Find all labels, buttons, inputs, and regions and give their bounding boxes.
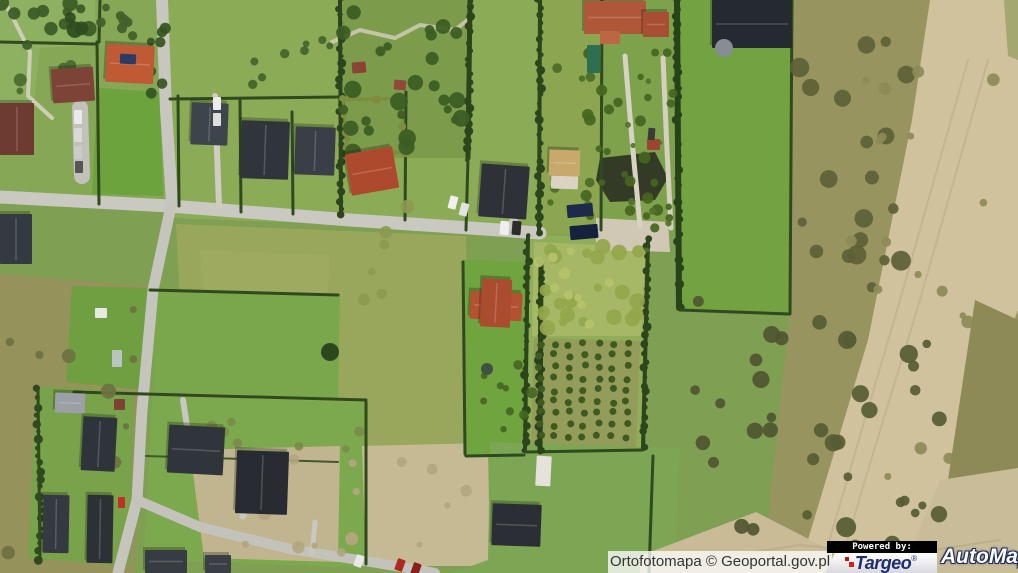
tree (294, 442, 303, 451)
hedge-shrub (338, 68, 346, 76)
structure (213, 113, 221, 126)
tree (596, 85, 607, 96)
hedge-shrub (466, 12, 475, 21)
hedge-shrub (463, 136, 472, 145)
orchard-tree (538, 399, 545, 406)
hedge-shrub (525, 322, 531, 328)
hedge-shrub (340, 54, 344, 58)
tree (513, 360, 522, 369)
orchard-tree (567, 420, 574, 427)
orchard-tree (609, 408, 616, 415)
orchard-tree (551, 423, 558, 430)
hedge-shrub (672, 116, 680, 124)
hedge-shrub (526, 291, 531, 296)
tree (625, 176, 636, 187)
tree (987, 73, 1000, 86)
orchard-tree (609, 350, 616, 357)
tree (878, 82, 891, 95)
hedge-shrub (674, 6, 681, 13)
hedge-shrub (523, 359, 528, 364)
tree (585, 178, 595, 188)
hedge-shrub (468, 88, 474, 94)
structure (499, 221, 509, 236)
tree (526, 387, 537, 398)
hedge-shrub (536, 47, 541, 52)
tree (292, 541, 304, 553)
tree (846, 235, 857, 246)
hedge-shrub (524, 306, 528, 310)
hedge-shrub (523, 264, 530, 271)
tree (416, 542, 422, 548)
hedge-shrub (526, 299, 530, 303)
tree (585, 320, 594, 329)
orchard-tree (596, 364, 603, 371)
hedge-shrub (536, 298, 543, 305)
hedge-shrub (339, 95, 345, 101)
structure (95, 308, 107, 318)
tree (642, 192, 654, 204)
tree (876, 137, 883, 144)
orchard-tree (622, 397, 629, 404)
tree (852, 385, 869, 402)
hedge-shrub (339, 172, 346, 179)
tree (825, 434, 842, 451)
orchard-tree (625, 340, 632, 347)
hedge-shrub (642, 387, 650, 395)
orchard-tree (607, 432, 614, 439)
tree (550, 283, 559, 292)
hedge-shrub (535, 115, 544, 124)
tree (289, 454, 300, 465)
tree (884, 473, 891, 480)
orchard-tree (578, 433, 585, 440)
hedge-shrub (673, 37, 678, 42)
tree (650, 179, 658, 187)
hedge-shrub (640, 340, 648, 348)
orchard-tree (550, 396, 557, 403)
tree (242, 541, 249, 548)
orchard-tree (537, 375, 544, 382)
hedge (466, 455, 524, 456)
hedge-shrub (524, 240, 528, 244)
tree (798, 217, 807, 226)
structure (74, 128, 82, 142)
tree (665, 220, 671, 226)
hedge-shrub (535, 60, 542, 67)
tree (603, 148, 610, 155)
hedge-shrub (536, 12, 543, 19)
hedge-shrub (37, 483, 43, 489)
hedge-shrub (644, 254, 649, 259)
tree (6, 338, 15, 347)
orchard-tree (610, 341, 617, 348)
tree (637, 74, 643, 80)
tree (539, 284, 551, 296)
tree (860, 136, 873, 149)
hedge-shrub (675, 141, 681, 147)
round-feature (481, 363, 493, 375)
tree (693, 296, 704, 307)
tree (345, 532, 358, 545)
hedge-shrub (676, 104, 681, 109)
hedge-shrub (673, 29, 681, 37)
hedge-shrub (337, 211, 345, 219)
orchard-tree (566, 374, 573, 381)
hedge-shrub (539, 269, 545, 275)
tree (425, 25, 435, 35)
hedge-shrub (644, 398, 648, 402)
tree (128, 31, 137, 40)
tree (790, 58, 809, 77)
tree (834, 90, 851, 107)
tree (891, 251, 911, 271)
hedge-shrub (677, 231, 683, 237)
hedge-shrub (524, 334, 528, 338)
tree (943, 453, 954, 464)
tree (497, 382, 504, 389)
structure (75, 161, 83, 173)
orchard-tree (566, 354, 573, 361)
orchard-tree (535, 364, 542, 371)
tree (763, 422, 778, 437)
tree (538, 306, 550, 318)
orchard-tree (537, 408, 544, 415)
hedge (170, 97, 339, 99)
tree (932, 411, 947, 426)
tree (595, 239, 610, 254)
hedge-shrub (467, 79, 473, 85)
tree (383, 42, 392, 51)
tree (594, 284, 602, 292)
structure (352, 61, 367, 73)
tree (586, 72, 595, 81)
tree (364, 125, 374, 135)
tree (449, 92, 465, 108)
tree (233, 438, 242, 447)
hedge-shrub (523, 283, 529, 289)
hedge-shrub (537, 102, 541, 106)
tree (696, 436, 711, 451)
tree (408, 75, 424, 91)
hedge-shrub (677, 264, 684, 271)
orchard-tree (579, 387, 586, 394)
tree (438, 94, 449, 105)
targeo-dots-icon (845, 557, 854, 570)
tree (506, 407, 514, 415)
tree (611, 245, 627, 261)
hedge-shrub (536, 36, 543, 43)
tree (625, 122, 631, 128)
hedge-shrub (335, 6, 342, 13)
tree (540, 320, 556, 336)
road (183, 400, 187, 426)
tree (606, 309, 622, 325)
tree (347, 5, 361, 19)
orchard-tree (608, 365, 615, 372)
orchard-tree (581, 351, 588, 358)
hedge-shrub (534, 439, 541, 446)
hedge-shrub (337, 59, 346, 68)
tree (344, 81, 361, 98)
hedge-shrub (522, 438, 530, 446)
tree (649, 208, 656, 215)
hedge-shrub (677, 273, 681, 277)
tree (582, 248, 592, 258)
orchard-tree (578, 396, 585, 403)
hedge-shrub (677, 183, 682, 188)
hedge-shrub (538, 447, 545, 454)
tree (96, 17, 106, 27)
tree (865, 171, 879, 185)
tree (376, 289, 386, 299)
structure (511, 221, 521, 236)
orchard-tree (594, 398, 601, 405)
hedge-shrub (524, 347, 529, 352)
map-viewport[interactable]: Ortofotomapa © Geoportal.gov.pl Powered … (0, 0, 1018, 573)
tree (1, 546, 14, 559)
hedge-shrub (466, 104, 474, 112)
orchard-tree (610, 400, 617, 407)
orchard-tree (622, 387, 629, 394)
attribution-bar: Ortofotomapa © Geoportal.gov.pl (608, 551, 832, 573)
hedge-shrub (34, 404, 42, 412)
tree (533, 257, 543, 267)
structure (587, 45, 600, 73)
orchard-tree (579, 376, 586, 383)
tree (604, 104, 614, 114)
hedge-shrub (463, 144, 471, 152)
hedge-shrub (538, 149, 542, 153)
hedge-shrub (643, 375, 648, 380)
orchard-tree (564, 342, 571, 349)
structure (74, 110, 82, 124)
tree (882, 237, 891, 246)
tree (426, 52, 439, 65)
hedge-shrub (675, 256, 684, 265)
tree (101, 384, 116, 399)
orchard-tree (608, 376, 615, 383)
tree (621, 171, 628, 178)
hedge-shrub (536, 66, 545, 75)
tree (646, 78, 652, 84)
hedge-shrub (536, 230, 543, 237)
tree (625, 312, 640, 327)
hedge-shrub (35, 395, 40, 400)
round-feature (321, 343, 339, 361)
automapa-logo[interactable]: AutoMapa® (941, 545, 1018, 569)
tree (130, 306, 137, 313)
tree (873, 285, 882, 294)
hedge-shrub (643, 267, 650, 274)
tree (342, 445, 349, 452)
tree (76, 4, 85, 13)
hedge-shrub (523, 317, 529, 323)
structure (74, 146, 82, 159)
hedge (178, 96, 179, 206)
tree (690, 385, 700, 395)
hedge-shrub (33, 420, 41, 428)
hedge-shrub (673, 20, 681, 28)
roof-ridge (99, 499, 100, 559)
hedge-shrub (535, 203, 543, 211)
hedge-shrub (535, 110, 541, 116)
hedge-shrub (522, 366, 527, 371)
tree (500, 426, 507, 433)
tree (907, 133, 914, 140)
tree (460, 485, 472, 497)
tree (747, 423, 763, 439)
structure (535, 456, 552, 487)
hedge-shrub (675, 127, 680, 132)
hedge-shrub (673, 198, 682, 207)
tree (157, 78, 167, 88)
tree (911, 509, 920, 518)
tree (635, 115, 646, 126)
tree (44, 22, 57, 35)
tree (752, 371, 769, 388)
tree (644, 94, 652, 102)
hedge-shrub (523, 432, 530, 439)
tree (343, 121, 358, 136)
tree (368, 268, 375, 275)
hedge-shrub (677, 208, 683, 214)
orchard-tree (536, 420, 543, 427)
tree (854, 209, 873, 228)
hedge-shrub (537, 84, 546, 93)
orchard-tree (625, 362, 632, 369)
tree (629, 293, 645, 309)
targeo-logo-text: Targeo (855, 554, 911, 572)
tree (397, 110, 406, 119)
hedge-shrub (520, 371, 529, 380)
hedge-shrub (641, 414, 648, 421)
orchard-tree (538, 432, 545, 439)
structure (213, 97, 221, 110)
orchard-tree (610, 385, 617, 392)
tree (337, 548, 346, 557)
orchard-tree (566, 408, 573, 415)
orchard-tree (625, 350, 632, 357)
structure (120, 54, 137, 65)
tree (596, 145, 603, 152)
hedge-shrub (673, 45, 680, 52)
orchard-tree (579, 339, 586, 346)
hedge-shrub (537, 182, 545, 190)
orchard-tree (552, 409, 559, 416)
tree (632, 245, 644, 257)
orchard-tree (579, 423, 586, 430)
hedge-shrub (673, 75, 681, 83)
hedge-shrub (336, 198, 343, 205)
tree (358, 294, 370, 306)
orchard-tree (596, 376, 603, 383)
hedge-shrub (676, 225, 680, 229)
tree (559, 268, 571, 280)
hedge-shrub (641, 351, 646, 356)
tree (349, 459, 357, 467)
tree (116, 11, 125, 20)
hedge-shrub (677, 249, 682, 254)
hedge-shrub (35, 453, 40, 458)
field (362, 443, 490, 566)
structure (118, 497, 125, 508)
tree (300, 46, 309, 55)
tree (577, 300, 586, 309)
tree (862, 77, 869, 84)
tree (581, 190, 592, 201)
tree (579, 75, 585, 81)
structure (112, 350, 122, 367)
tree (625, 205, 636, 216)
tree (129, 355, 137, 363)
hedge-shrub (677, 216, 683, 222)
hedge-shrub (645, 276, 652, 283)
tree (628, 198, 635, 205)
tree (747, 523, 760, 536)
hedge-shrub (676, 193, 681, 198)
hedge-shrub (538, 275, 545, 282)
hedge-shrub (467, 3, 474, 10)
tree (915, 442, 927, 454)
hedge-shrub (536, 132, 541, 137)
hedge (463, 262, 465, 454)
tree (931, 506, 947, 522)
orchard-tree (624, 376, 631, 383)
hedge-shrub (337, 12, 342, 17)
hedge-shrub (644, 316, 649, 321)
hedge-shrub (538, 92, 543, 97)
hedge-shrub (468, 48, 473, 53)
hedge-shrub (336, 45, 343, 52)
tree (361, 116, 371, 126)
orchard-tree (552, 362, 559, 369)
orchard-tree (593, 409, 600, 416)
hedge-shrub (677, 288, 682, 293)
hedge-shrub (676, 136, 680, 140)
hedge-shrub (36, 429, 40, 433)
tree (888, 203, 899, 214)
hedge-shrub (534, 172, 541, 179)
tree (644, 248, 649, 253)
hedge-shrub (539, 141, 544, 146)
tree (353, 488, 360, 495)
tree (450, 27, 462, 39)
orchard-tree (551, 388, 558, 395)
tree (802, 510, 812, 520)
tree (820, 170, 838, 188)
tree (810, 245, 824, 259)
tree (896, 497, 906, 507)
hedge-shrub (676, 159, 680, 163)
hedge-shrub (335, 83, 341, 89)
tree (630, 143, 635, 148)
tree (160, 23, 171, 34)
orchard-tree (593, 432, 600, 439)
targeo-logo[interactable]: Targeo® (825, 553, 937, 573)
tree (123, 423, 129, 429)
tree (912, 66, 924, 78)
tree (67, 21, 83, 37)
hedge-shrub (537, 199, 541, 203)
orchard-tree (535, 352, 542, 359)
hedge-shrub (34, 547, 41, 554)
tree (643, 212, 650, 219)
aerial-map-canvas[interactable] (0, 0, 1018, 573)
hedge-shrub (34, 556, 43, 565)
orchard-tree (595, 353, 602, 360)
hedge-shrub (335, 76, 343, 84)
tree (613, 98, 623, 108)
